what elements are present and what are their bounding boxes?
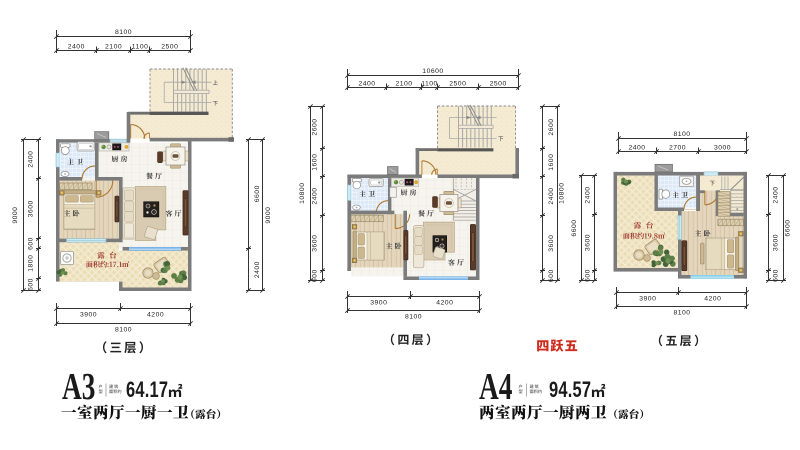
svg-text:600: 600	[312, 269, 319, 282]
svg-text:1100: 1100	[421, 80, 438, 87]
svg-text:3600: 3600	[585, 234, 592, 251]
svg-text:8100: 8100	[405, 314, 422, 321]
svg-text:6600: 6600	[571, 219, 578, 236]
svg-text:1800: 1800	[28, 255, 35, 272]
svg-text:1600: 1600	[548, 154, 555, 171]
svg-text:2400: 2400	[628, 144, 645, 151]
svg-text:8100: 8100	[115, 29, 132, 36]
svg-text:4200: 4200	[436, 300, 453, 307]
svg-text:2400: 2400	[28, 151, 35, 168]
svg-text:8100: 8100	[673, 131, 690, 138]
svg-text:2400: 2400	[254, 261, 261, 278]
svg-text:600: 600	[28, 237, 35, 250]
svg-text:2500: 2500	[449, 80, 466, 87]
svg-text:3600: 3600	[548, 235, 555, 252]
svg-text:600: 600	[773, 269, 780, 282]
svg-text:3000: 3000	[714, 144, 731, 151]
svg-text:10600: 10600	[422, 68, 443, 75]
svg-text:A4: A4	[479, 366, 512, 408]
svg-text:4200: 4200	[147, 312, 164, 319]
svg-text:600: 600	[585, 269, 592, 282]
svg-text:2400: 2400	[312, 187, 319, 204]
svg-text:9000: 9000	[265, 207, 272, 224]
svg-text:3600: 3600	[28, 200, 35, 217]
svg-text:2600: 2600	[312, 118, 319, 135]
svg-text:2600: 2600	[548, 118, 555, 135]
svg-text:2400: 2400	[68, 43, 85, 50]
svg-text:6600: 6600	[785, 219, 792, 236]
svg-text:2400: 2400	[358, 80, 375, 87]
svg-text:2400: 2400	[773, 186, 780, 203]
svg-text:10800: 10800	[559, 182, 566, 203]
svg-text:3600: 3600	[312, 235, 319, 252]
svg-text:3600: 3600	[773, 234, 780, 251]
svg-text:64.17: 64.17	[126, 378, 168, 403]
svg-text:2500: 2500	[490, 80, 507, 87]
svg-text:2100: 2100	[105, 43, 122, 50]
svg-text:600: 600	[548, 269, 555, 282]
svg-text:2400: 2400	[585, 186, 592, 203]
svg-text:94.57: 94.57	[549, 378, 591, 403]
svg-text:3900: 3900	[80, 312, 97, 319]
svg-text:2500: 2500	[161, 43, 178, 50]
svg-text:2400: 2400	[548, 187, 555, 204]
svg-text:9000: 9000	[12, 207, 19, 224]
svg-text:10800: 10800	[299, 182, 306, 203]
svg-text:6600: 6600	[254, 185, 261, 202]
svg-text:8100: 8100	[673, 310, 690, 317]
svg-text:2700: 2700	[669, 144, 686, 151]
svg-text:4200: 4200	[704, 296, 721, 303]
svg-text:A3: A3	[62, 366, 95, 408]
svg-text:1100: 1100	[132, 43, 149, 50]
svg-text:1600: 1600	[312, 154, 319, 171]
svg-text:600: 600	[28, 278, 35, 291]
svg-text:3900: 3900	[639, 296, 656, 303]
svg-text:3900: 3900	[370, 300, 387, 307]
svg-text:8100: 8100	[115, 327, 132, 334]
svg-text:2100: 2100	[395, 80, 412, 87]
